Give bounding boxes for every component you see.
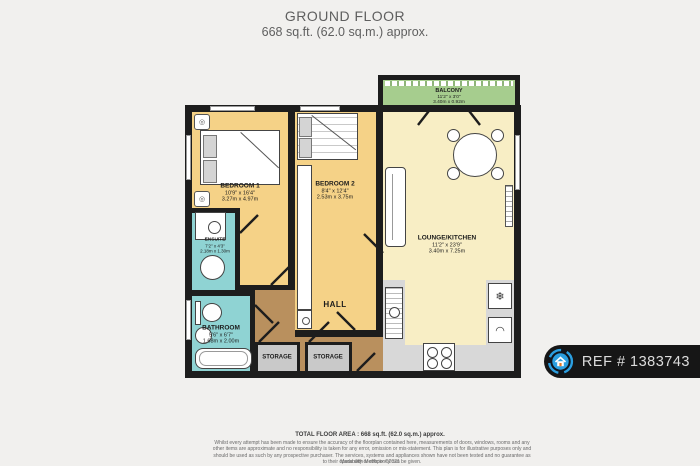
page-subtitle: 668 sq.ft. (62.0 sq.m.) approx.	[0, 25, 690, 39]
door-lines	[185, 75, 521, 378]
ref-number: REF # 1383743	[582, 354, 690, 370]
page-title: GROUND FLOOR	[0, 8, 690, 24]
floor-plan: BALCONY 11'2" x 3'0" 3.40m x 0.92m ◎ ◎	[185, 75, 521, 378]
ref-badge[interactable]: REF # 1383743	[544, 345, 700, 378]
house-logo-icon	[547, 348, 574, 375]
total-floor-area: TOTAL FLOOR AREA : 668 sq.ft. (62.0 sq.m…	[60, 432, 680, 438]
credit-text: Made with Metropix ©2021	[60, 459, 680, 465]
